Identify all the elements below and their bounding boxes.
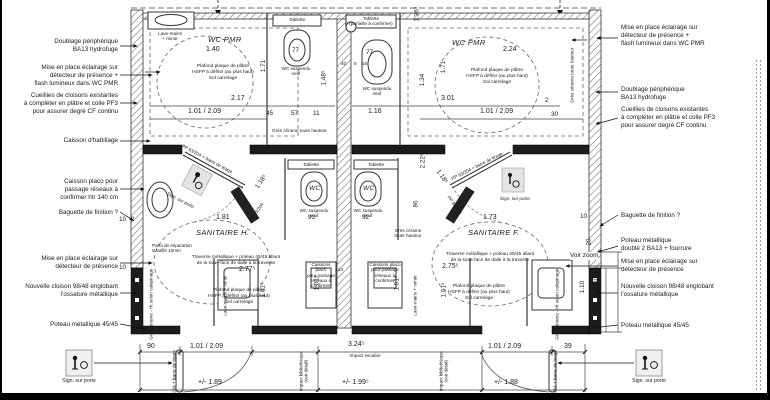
tablette-label-3: Tablette (355, 162, 397, 167)
gres-calepinage-right: Grès cérame - Ht selon calepinage (554, 262, 559, 340)
dim-1-71-left: 1.71 (260, 60, 268, 72)
dim-door-bottom-right: 1.01 / 2.09 (488, 343, 521, 352)
dim-1-01-d: 1.01⁵ (441, 282, 449, 297)
dim-45: 45 (266, 110, 273, 118)
dim-1-36: 1.36⁵ (414, 6, 422, 21)
dim-1-73: 1.73 (483, 214, 497, 223)
dim-door-top-left: 1.01 / 2.09 (188, 108, 221, 117)
gres-toute-hauteur-right-wall: Grès cérame toute hauteur (569, 39, 574, 103)
dim-2-75: 2.75⁵ (442, 263, 459, 272)
dim-1-16: 1.16 (368, 108, 382, 117)
dim-30-right: 30 (551, 111, 558, 119)
dim-39: 39 (564, 343, 572, 352)
sheet-left-edge (0, 0, 2, 400)
dim-1-30: 1.30 (593, 277, 601, 289)
traverse-note-right: Traverse métallique + poteau 45/45 allan… (440, 252, 540, 264)
dim-2-22: 2.22⁵ (420, 153, 428, 168)
impact-escalier-label: Impact escalier (343, 353, 387, 358)
fine-print-strip-1 (756, 60, 757, 390)
annotation-cueillies-left: Cueillies de cloisons existantes à compl… (6, 92, 118, 116)
annotation-eclairage-pmr-left: Mise en place éclairage sur détecteur de… (6, 64, 118, 88)
dim-10-left: 10 (119, 216, 126, 224)
annotation-caisson-habillage: Caisson d'habillage (6, 137, 118, 145)
dim-2-left: 2 (131, 216, 135, 224)
wc-label-h: WC (309, 185, 321, 193)
dim-18: 18 (362, 61, 367, 66)
dim-57: 57 (291, 110, 298, 118)
dim-92: 92 (362, 214, 369, 222)
annotation-eclairage-left: Mise en place éclairage sur détecteur de… (6, 255, 118, 271)
wc-suspendu-label-2: WC suspendu neuf (357, 86, 397, 97)
dim-2-17: 2.17 (231, 95, 245, 104)
pp93-vert-bottom-right: PP 93/204 + barre de tirage (552, 335, 557, 400)
gres-toute-hauteur-2: Grès cérame toute hauteur (388, 228, 428, 239)
annotation-eclairage-pmr-right: Mise en place éclairage sur détecteur de… (621, 24, 769, 48)
sheet-bottom-bar (0, 393, 770, 400)
annotation-baguette-left: Baguette de finition ? (6, 209, 118, 217)
dim-1-34: 1.34 (419, 74, 427, 86)
room-wc-pmr-right: WC PMR (452, 38, 486, 47)
annotation-eclairage-right: Mise en place éclairage sur détecteur de… (621, 258, 769, 274)
dim-2-24: 2.24 (503, 46, 517, 55)
annotation-doublage-right: Doublage périphérique BA13 hydrofuge (621, 86, 769, 102)
dim-11: 11 (313, 110, 320, 118)
dim-1-01-c: 1.01⁵ (394, 275, 402, 290)
annotation-caisson-placo: Caisson placo pour passage réseaux à con… (6, 178, 118, 202)
impact-biblio-right: Impact bibliothèque (voir détail) (439, 343, 450, 399)
dim-door-top-right: 1.01 / 2.09 (480, 108, 513, 117)
pp93-vert-bottom-left: PP 93/204 + barre de tirage (171, 335, 176, 400)
annotation-poteau-double: Poteau métallique doublé 2 BA13 + fourru… (621, 237, 769, 253)
dim-77-left: 77 (292, 47, 299, 55)
dim-10-right: 10 (580, 213, 587, 221)
dim-20: 20 (586, 238, 594, 245)
tablette-partielle-label: Tablette (partielle à confirmer) (344, 16, 398, 27)
annotation-cloison-right: Nouvelle cloison 98/48 englobant l'ossat… (621, 283, 769, 299)
annotation-poteau-right: Poteau métallique 45/45 (621, 322, 769, 330)
lave-mains-label-top: Lave-mains + miroir (150, 31, 190, 42)
sign-porte-under-f: Sign. sur porte (500, 196, 540, 201)
annotation-cloison-left: Nouvelle cloison 98/48 englobant l'ossat… (6, 283, 118, 299)
dim-10-left-2: 10 (119, 264, 126, 272)
dim-1-01-b: 1.01⁵ (314, 275, 322, 290)
dim-1-81: 1.81 (216, 214, 230, 223)
wc-label-f: WC (363, 185, 375, 193)
dim-pm-189: +/- 1.89 (198, 379, 222, 388)
traverse-note-left: Traverse métallique + poteau 45/45 allan… (188, 255, 284, 267)
dim-14: 14 (338, 267, 343, 272)
dim-40: 40 (341, 61, 346, 66)
gres-calepinage-left: Grès cérame - Ht selon calepinage (148, 262, 153, 340)
dim-pm-199: +/- 1.99⁵ (342, 379, 369, 388)
dim-1-01-a: 1.01⁵ (260, 282, 268, 297)
dim-2-right: 2 (545, 97, 549, 105)
lave-mains-vert-left: Lave-mains + miroir (222, 258, 227, 316)
dim-8: 8 (354, 61, 357, 66)
ceiling-note-wcpmr-right: Plafond plaque de plâtre HSFP à définir … (452, 68, 542, 85)
dim-3-01: 3.01 (441, 95, 455, 104)
sign-sur-porte-label-left: Sign. sur porte (51, 378, 107, 385)
paroi-separation-note: Paroi de séparation stratifié 10mm (152, 243, 198, 254)
voir-zoom-label: Voir zoom (570, 252, 598, 260)
dim-1-40: 1.40 (206, 46, 220, 55)
ceiling-note-wcpmr-left: Plafond plaque de plâtre HSFP à définir … (180, 64, 266, 81)
dim-86: 86 (413, 200, 421, 207)
dim-door-bottom-left: 1.01 / 2.09 (190, 343, 223, 352)
annotation-cueillies-right: Cueillies de cloisons existantes à compl… (621, 106, 769, 130)
fine-print-strip-2 (760, 60, 761, 390)
dim-1-10: 1.10 (579, 281, 587, 293)
ceiling-note-san-f: Plafond plaque de plâtre HSFP à définir … (436, 284, 522, 301)
tablette-label-1: Tablette (276, 17, 318, 22)
ceiling-note-san-h: Plafond plaque de plâtre HSFP à définir … (196, 288, 282, 305)
annotation-poteau-left: Poteau métallique 45/45 (6, 321, 118, 329)
annotation-baguette-right: Baguette de finition ? (621, 212, 769, 220)
room-sanitaire-h: SANITAIRE H. (196, 228, 249, 237)
wc-suspendu-label-1: WC suspendu neuf (276, 66, 316, 77)
dim-pm-188: +/- 1.88 (494, 379, 518, 388)
dim-1-71-right: 1.71 (440, 61, 448, 73)
impact-biblio-left: Impact bibliothèque (voir détail) (299, 343, 310, 399)
room-sanitaire-f: SANITAIRE F. (468, 228, 520, 237)
lave-mains-vert-right: Lave-mains + miroir (412, 258, 417, 316)
dim-2-77: 2.77⁵ (239, 266, 256, 275)
sign-sur-porte-label-right: Sign. sur porte (621, 378, 677, 385)
dim-93: 93 (308, 214, 315, 222)
gres-toute-hauteur-1: Grès cérame toute hauteur (272, 128, 336, 133)
floor-plan-sheet: Doublage périphérique BA13 hydrofuge Mis… (0, 0, 770, 400)
room-wc-pmr-left: WC PMR (208, 35, 242, 44)
dim-1-48: 1.48⁵ (321, 70, 329, 85)
annotation-doublage-left: Doublage périphérique BA13 hydrofuge (6, 38, 118, 54)
dim-77-right: 77 (366, 49, 373, 57)
dim-90: 90 (147, 343, 155, 352)
dim-3-24: 3.24⁵ (348, 341, 365, 350)
tablette-label-2: Tablette (290, 162, 332, 167)
